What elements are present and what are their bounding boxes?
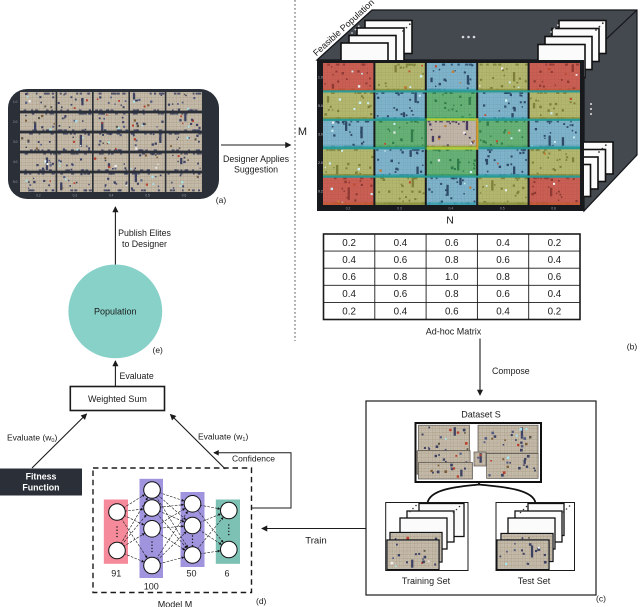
svg-text:Suggestion: Suggestion xyxy=(234,165,278,175)
svg-text:0.2: 0.2 xyxy=(36,194,41,198)
svg-text:(c): (c) xyxy=(596,594,606,604)
svg-text:3.0: 3.0 xyxy=(13,140,18,144)
svg-text:91: 91 xyxy=(111,569,121,579)
svg-text:0.6: 0.6 xyxy=(548,272,562,283)
svg-text:0.4: 0.4 xyxy=(109,194,114,198)
svg-text:0.4: 0.4 xyxy=(449,207,454,211)
svg-text:Evaluate: Evaluate xyxy=(120,371,154,381)
svg-text:(d): (d) xyxy=(256,596,267,606)
svg-text:0.8: 0.8 xyxy=(445,289,459,300)
svg-text:(e): (e) xyxy=(153,345,164,355)
svg-text:0.2: 0.2 xyxy=(342,306,356,317)
svg-text:2.0: 2.0 xyxy=(13,120,18,124)
svg-text:0.4: 0.4 xyxy=(342,289,356,300)
svg-text:Evaluate (w0): Evaluate (w0) xyxy=(7,433,57,445)
svg-text:0.4: 0.4 xyxy=(394,238,408,249)
svg-text:Ad-hoc Matrix: Ad-hoc Matrix xyxy=(426,327,482,337)
svg-text:Publish Elites: Publish Elites xyxy=(118,228,171,238)
svg-text:Dataset S: Dataset S xyxy=(461,410,501,420)
svg-text:0.6: 0.6 xyxy=(182,194,187,198)
svg-text:0.4: 0.4 xyxy=(496,238,510,249)
svg-text:N: N xyxy=(446,215,454,227)
svg-text:Evaluate (w1): Evaluate (w1) xyxy=(198,432,248,444)
svg-text:Function: Function xyxy=(22,483,59,493)
svg-text:0.6: 0.6 xyxy=(445,238,459,249)
svg-text:3.0: 3.0 xyxy=(318,133,323,137)
svg-text:(b): (b) xyxy=(627,342,638,352)
svg-text:0.6: 0.6 xyxy=(342,272,356,283)
svg-text:0.6: 0.6 xyxy=(496,255,510,266)
svg-text:0.6: 0.6 xyxy=(551,207,556,211)
svg-text:0.6: 0.6 xyxy=(445,306,459,317)
svg-text:0.2: 0.2 xyxy=(548,238,562,249)
svg-text:Population: Population xyxy=(94,307,137,317)
svg-text:4.0: 4.0 xyxy=(13,160,18,164)
svg-text:to Designer: to Designer xyxy=(122,239,167,249)
svg-text:50: 50 xyxy=(186,569,196,579)
svg-text:Model M: Model M xyxy=(158,600,193,607)
svg-text:0.8: 0.8 xyxy=(394,272,408,283)
svg-text:1.0: 1.0 xyxy=(445,272,459,283)
svg-text:0.4: 0.4 xyxy=(496,306,510,317)
svg-text:0.8: 0.8 xyxy=(496,272,510,283)
svg-text:Confidence: Confidence xyxy=(232,453,275,463)
svg-text:0.5: 0.5 xyxy=(500,207,505,211)
svg-text:0.3: 0.3 xyxy=(397,207,402,211)
svg-text:Designer Applies: Designer Applies xyxy=(223,154,290,164)
svg-text:1.0: 1.0 xyxy=(13,100,18,104)
svg-text:0.8: 0.8 xyxy=(445,255,459,266)
svg-text:5.0: 5.0 xyxy=(318,104,323,108)
svg-text:0.2: 0.2 xyxy=(548,306,562,317)
svg-text:M: M xyxy=(298,126,307,138)
svg-text:0.3: 0.3 xyxy=(73,194,78,198)
svg-text:5.0: 5.0 xyxy=(13,180,18,184)
svg-text:0.6: 0.6 xyxy=(394,289,408,300)
svg-text:1.0: 1.0 xyxy=(318,76,323,80)
svg-text:0.2: 0.2 xyxy=(346,207,351,211)
svg-text:0.6: 0.6 xyxy=(496,289,510,300)
svg-text:Training Set: Training Set xyxy=(402,576,451,586)
svg-text:2.0: 2.0 xyxy=(318,161,323,165)
svg-text:6: 6 xyxy=(224,569,229,579)
svg-text:Test Set: Test Set xyxy=(518,576,551,586)
svg-text:0.6: 0.6 xyxy=(394,255,408,266)
svg-text:0.4: 0.4 xyxy=(342,255,356,266)
svg-text:Weighted Sum: Weighted Sum xyxy=(88,394,147,404)
svg-text:100: 100 xyxy=(144,582,159,592)
svg-text:0.4: 0.4 xyxy=(394,306,408,317)
svg-text:0.4: 0.4 xyxy=(548,255,562,266)
svg-text:0.5: 0.5 xyxy=(145,194,150,198)
svg-text:Train: Train xyxy=(305,536,327,547)
svg-text:9.2: 9.2 xyxy=(318,189,323,193)
svg-text:Fitness: Fitness xyxy=(26,472,57,482)
svg-text:0.4: 0.4 xyxy=(548,289,562,300)
svg-text:Compose: Compose xyxy=(492,366,530,376)
svg-text:0.2: 0.2 xyxy=(342,238,356,249)
svg-text:(a): (a) xyxy=(216,195,227,205)
